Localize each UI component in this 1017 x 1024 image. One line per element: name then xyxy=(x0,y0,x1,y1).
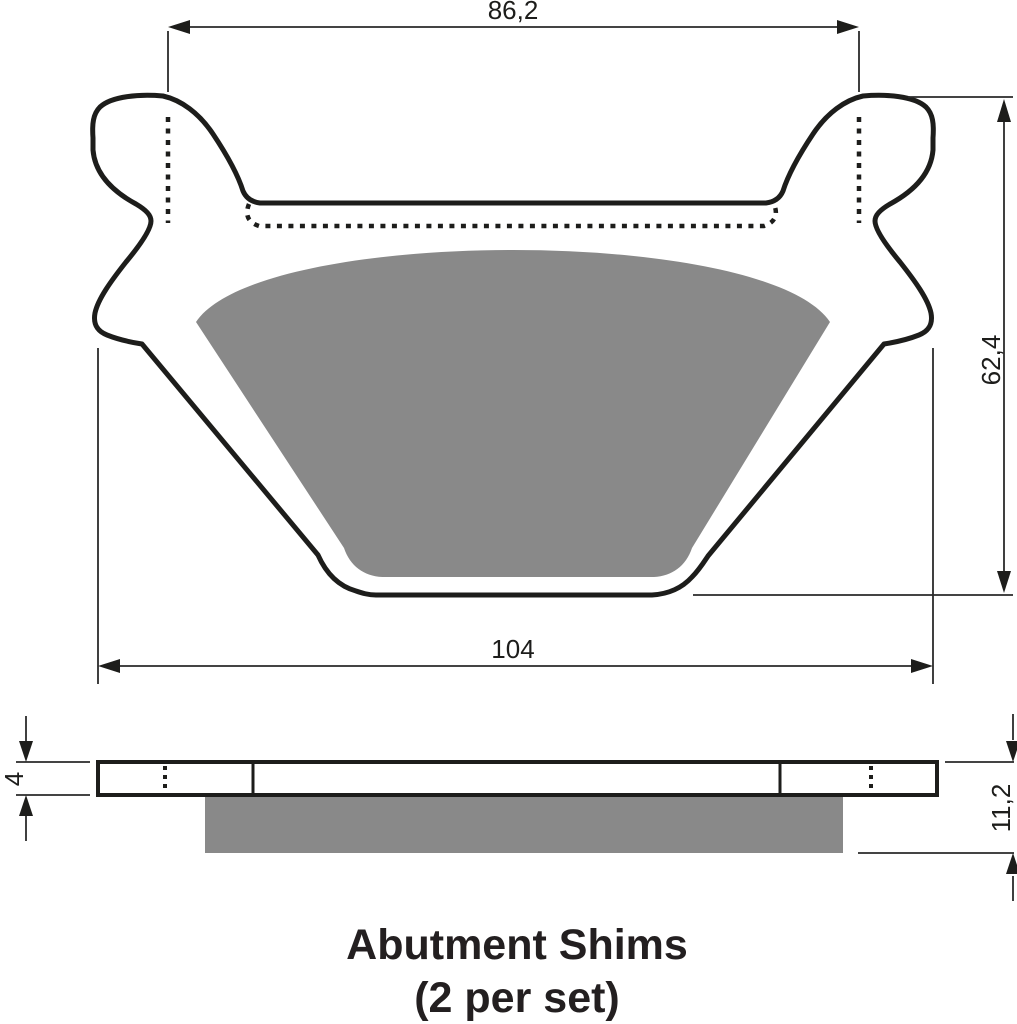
arrowhead-up-icon xyxy=(997,99,1011,122)
arrowhead-down-icon xyxy=(1006,741,1017,762)
dim-label-plate-thickness: 4 xyxy=(0,772,29,786)
friction-material-side-view xyxy=(205,795,843,853)
arrowhead-down-icon xyxy=(997,571,1011,593)
pad-side-view xyxy=(98,762,937,853)
drawing-title-line2: (2 per set) xyxy=(414,974,620,1022)
technical-drawing: 86,2 62,4 104 xyxy=(0,0,1017,1024)
dim-label-bottom-width: 104 xyxy=(491,634,534,664)
drawing-title-line1: Abutment Shims xyxy=(346,921,688,969)
dimension-plate-thickness: 4 xyxy=(0,716,90,841)
dimension-top-width: 86,2 xyxy=(168,0,859,92)
arrowhead-left-icon xyxy=(168,20,190,34)
arrowhead-right-icon xyxy=(911,659,933,673)
dimension-total-thickness: 11,2 xyxy=(858,714,1017,901)
dim-label-height: 62,4 xyxy=(976,335,1006,386)
drawing-canvas: 86,2 62,4 104 xyxy=(0,0,1017,1024)
arrowhead-up-icon xyxy=(1006,853,1017,874)
arrowhead-right-icon xyxy=(837,20,859,34)
dim-label-total-thickness: 11,2 xyxy=(986,784,1016,833)
friction-material-top-view xyxy=(196,250,830,577)
dim-label-top-width: 86,2 xyxy=(488,0,539,25)
arrowhead-left-icon xyxy=(98,659,120,673)
arrowhead-down-icon xyxy=(19,741,33,762)
backing-plate-side-view xyxy=(98,762,937,795)
arrowhead-up-icon xyxy=(19,795,33,816)
